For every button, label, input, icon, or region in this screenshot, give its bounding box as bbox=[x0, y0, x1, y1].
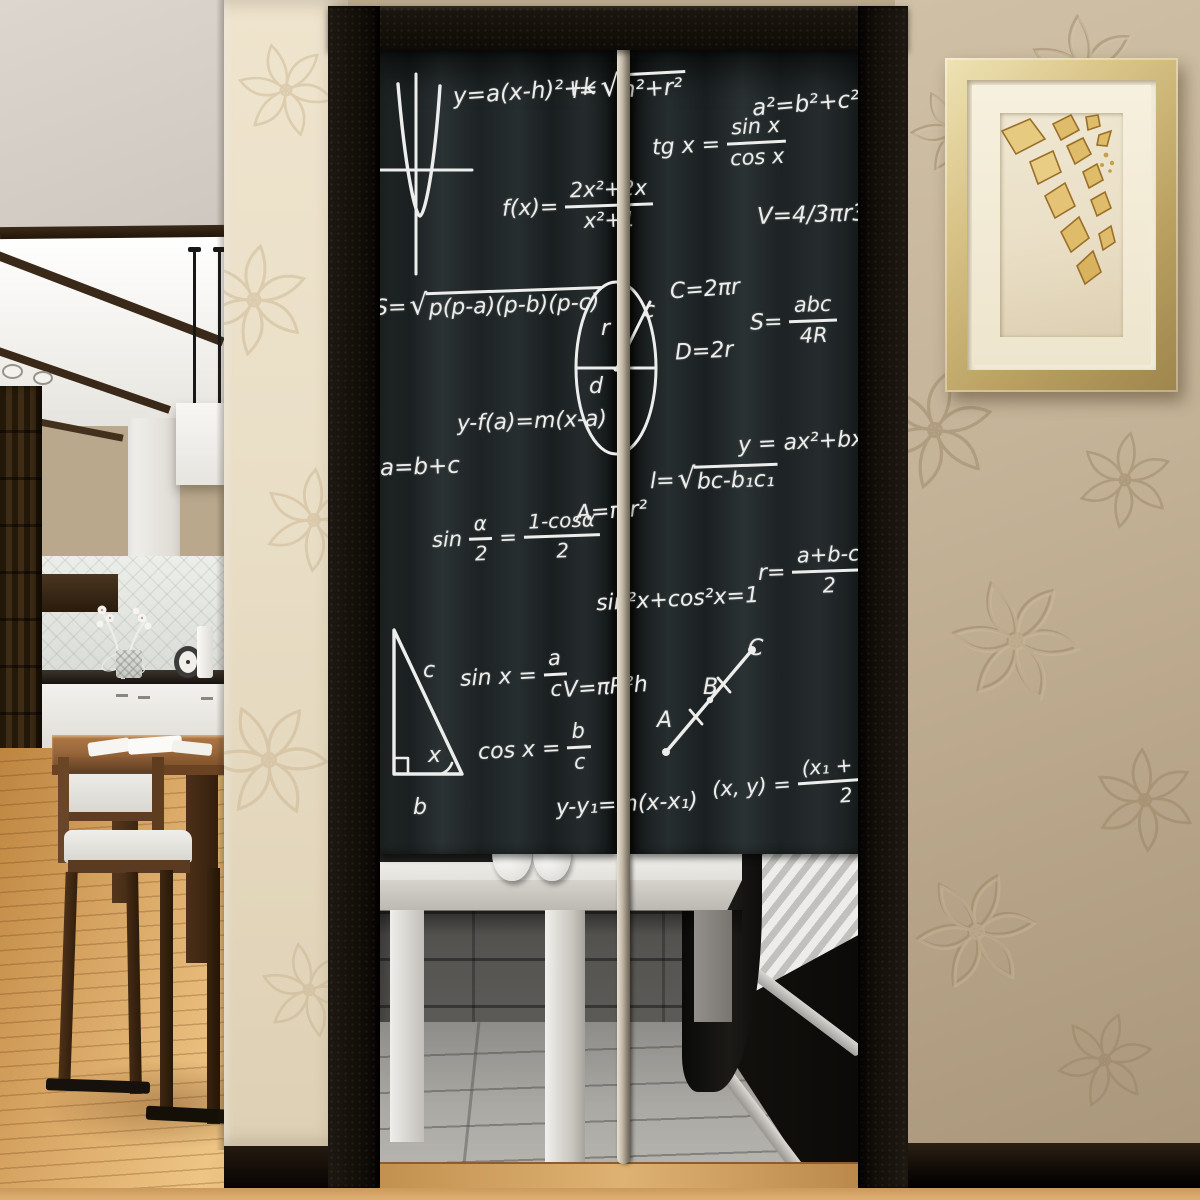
ceiling-beam-top bbox=[0, 225, 224, 239]
chair-leg-3 bbox=[160, 870, 173, 1110]
scene-photo: r c d a c x b A B C y=a(x-h)²+kl=√h²+r²a… bbox=[0, 0, 1200, 1200]
chalk-formula-sphere-volume: V=4/3πr3 bbox=[757, 201, 868, 229]
triangle-label-b: b bbox=[413, 795, 427, 820]
cabinet-handle-3 bbox=[201, 697, 213, 700]
chalk-formula-diameter: D=2r bbox=[674, 338, 734, 364]
side-table-leg-left bbox=[390, 910, 424, 1142]
chalk-formula-cosine-def: cos x =bc bbox=[477, 720, 596, 779]
chalk-formula-circumference: C=2πr bbox=[669, 276, 741, 304]
door-frame-top bbox=[328, 6, 908, 50]
triangle-label-c: c bbox=[423, 658, 435, 683]
recessed-light-1 bbox=[2, 364, 23, 379]
side-table-apron bbox=[364, 880, 742, 911]
cabinet-handle-2 bbox=[138, 696, 150, 699]
chair-back-panel bbox=[69, 774, 152, 812]
bottom-floor-strip bbox=[0, 1188, 1200, 1200]
side-table-leg-back bbox=[694, 910, 732, 1022]
chair-seat-cushion bbox=[64, 830, 192, 863]
triangle-label-x: x bbox=[428, 743, 441, 768]
door-frame-left-post bbox=[328, 6, 380, 1188]
chalk-formula-heron: S=√p(p-a)(p-b)(p-c) bbox=[374, 286, 604, 322]
chalk-formula-rational-fn: f(x)=2x²+2xx²+1 bbox=[501, 177, 657, 235]
chalk-formula-sine-def: sin x =ac bbox=[459, 647, 572, 706]
glass-vase bbox=[116, 650, 142, 678]
side-table-leg-front bbox=[545, 910, 585, 1162]
chalk-formula-inradius: r=a+b-c2 bbox=[757, 543, 870, 600]
white-canister bbox=[197, 626, 213, 678]
door-frame-right-post bbox=[858, 6, 908, 1188]
hall-upper-wall bbox=[0, 0, 224, 242]
chalk-formula-tangent-def: tg x =sin xcos x bbox=[651, 114, 792, 174]
chalk-formula-half-angle: sinα2=1-cosα2 bbox=[431, 509, 605, 566]
pendant-rod-1-cap bbox=[188, 247, 201, 252]
pendant-rod-1 bbox=[193, 250, 196, 415]
circle-label-d: d bbox=[589, 374, 603, 399]
right-wall-baseboard bbox=[895, 1143, 1200, 1190]
segment-label-A: A bbox=[657, 708, 672, 733]
circle-label-c: c bbox=[643, 298, 655, 323]
chalk-formula-sum: a=b+c bbox=[380, 454, 461, 481]
chalk-formula-tangent-line: y-f(a)=m(x-a) bbox=[457, 407, 608, 435]
chair-back-lower-rail bbox=[69, 812, 152, 821]
circle-label-r: r bbox=[601, 316, 610, 341]
chair-top-rail bbox=[58, 757, 164, 773]
cabinet-handle-1 bbox=[116, 694, 128, 697]
table-clock-center bbox=[186, 660, 190, 664]
curtain-rod bbox=[617, 44, 630, 1164]
chalk-formula-cylinder-volume: V=πR²h bbox=[562, 673, 648, 702]
chalk-formula-circumradius: S=abc4R bbox=[749, 293, 842, 349]
right-triangle-diagram bbox=[384, 624, 468, 780]
segment-label-B: B bbox=[703, 675, 718, 700]
segment-label-C: C bbox=[748, 636, 763, 661]
recessed-light-2 bbox=[33, 371, 53, 385]
chalk-formula-chord: l=√bc-b₁c₁ bbox=[650, 463, 779, 496]
picture-art-gold-leaves bbox=[1000, 113, 1123, 337]
